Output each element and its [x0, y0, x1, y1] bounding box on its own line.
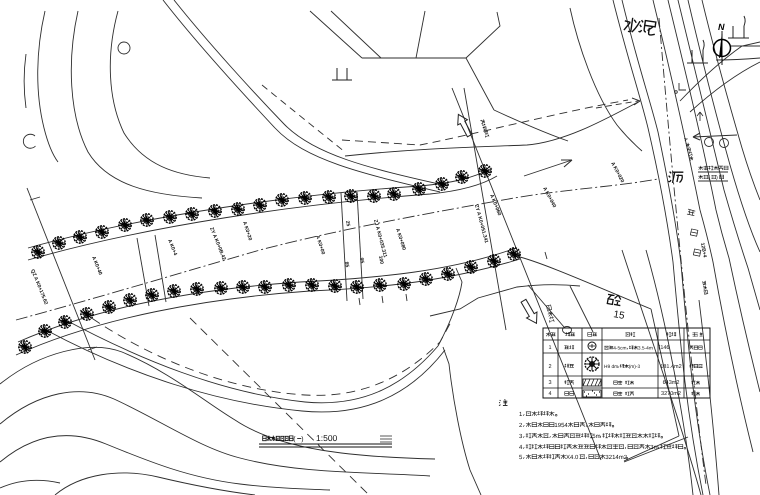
- svg-text:N: N: [718, 22, 725, 32]
- svg-text:(m)-3: (m)-3: [629, 364, 641, 370]
- svg-text:3214m2: 3214m2: [605, 454, 627, 461]
- svg-text:3: 3: [548, 380, 551, 386]
- svg-text:1:500: 1:500: [316, 433, 338, 443]
- svg-text:H9 dm: H9 dm: [604, 364, 618, 370]
- svg-text:3m: 3m: [650, 444, 658, 451]
- svg-text:2: 2: [548, 364, 551, 370]
- svg-text:(146: (146: [658, 345, 669, 351]
- svg-text:5m: 5m: [592, 433, 600, 440]
- svg-text:181.4m2: 181.4m2: [660, 364, 681, 370]
- svg-text:1: 1: [548, 345, 551, 351]
- svg-text:4: 4: [548, 391, 551, 397]
- svg-text:3270m2: 3270m2: [661, 391, 681, 397]
- svg-text:): ): [301, 436, 303, 443]
- svg-text:X4.0: X4.0: [566, 454, 579, 461]
- svg-text:643m2: 643m2: [663, 380, 680, 386]
- svg-text:3.5-4m: 3.5-4m: [638, 346, 653, 352]
- svg-text:4-5cm: 4-5cm: [613, 346, 626, 352]
- svg-text:): ): [716, 175, 718, 181]
- svg-text:1954: 1954: [554, 422, 568, 429]
- svg-text:(: (: [708, 175, 710, 181]
